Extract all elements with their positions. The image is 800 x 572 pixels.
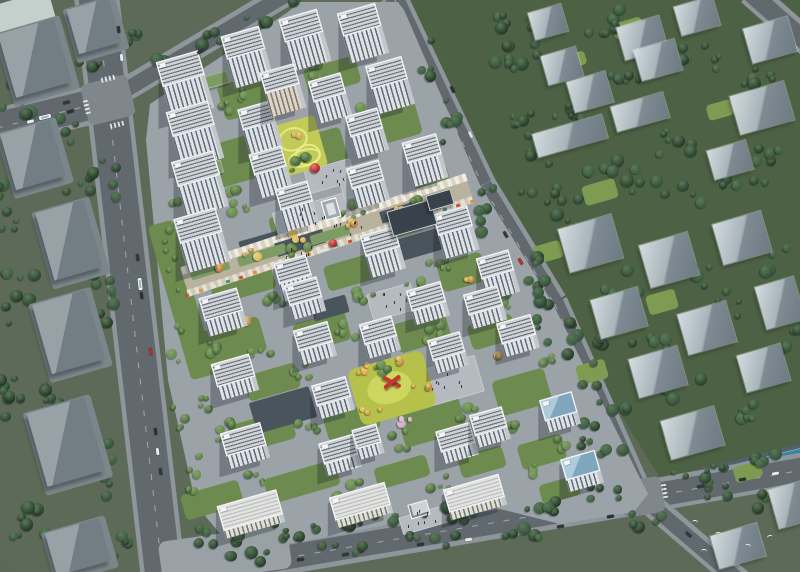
tree xyxy=(167,349,177,359)
tree xyxy=(0,192,4,200)
tree xyxy=(101,317,112,328)
tree xyxy=(61,127,71,137)
person xyxy=(361,225,363,228)
tree xyxy=(536,325,541,330)
tree xyxy=(311,523,316,528)
ghost-building xyxy=(710,523,766,569)
rooftop-unit xyxy=(332,498,339,503)
tree xyxy=(231,185,241,195)
bus-roof-stripe xyxy=(139,280,141,288)
tree xyxy=(516,57,529,70)
tree xyxy=(40,384,52,396)
rooftop-unit xyxy=(220,507,227,512)
tree xyxy=(574,194,584,204)
tree xyxy=(264,549,270,555)
tree xyxy=(622,265,634,277)
tree xyxy=(79,181,84,186)
tree xyxy=(770,251,777,258)
tree xyxy=(181,414,190,423)
tree xyxy=(567,333,579,345)
rooftop-unit xyxy=(241,110,248,115)
rooftop-unit xyxy=(311,82,318,87)
tree xyxy=(227,207,238,218)
sculpture-sphere xyxy=(329,239,337,247)
rooftop-unit xyxy=(409,291,416,296)
rooftop-unit xyxy=(278,190,285,195)
tree xyxy=(407,534,414,541)
tree xyxy=(490,184,497,191)
car xyxy=(155,448,159,455)
tree xyxy=(545,199,551,205)
tree xyxy=(290,168,295,173)
car xyxy=(116,26,120,33)
tree xyxy=(399,416,405,422)
tree xyxy=(88,167,99,178)
tree xyxy=(17,394,26,403)
tree xyxy=(696,197,706,207)
tree xyxy=(356,478,364,486)
tree xyxy=(171,405,175,409)
tree xyxy=(614,4,626,16)
rooftop-unit xyxy=(159,63,166,68)
tree xyxy=(92,279,102,289)
tree xyxy=(426,483,436,493)
tree xyxy=(476,216,486,226)
tree xyxy=(515,121,521,127)
rooftop-unit xyxy=(252,155,259,160)
tree xyxy=(612,20,619,27)
rooftop-unit xyxy=(369,67,376,72)
bus-roof-stripe xyxy=(41,115,49,118)
rooftop-unit xyxy=(322,444,329,449)
tree xyxy=(10,533,17,540)
tree xyxy=(717,54,722,59)
tree xyxy=(112,192,122,202)
tree xyxy=(107,481,113,487)
tree xyxy=(108,298,120,310)
ghost-building xyxy=(768,481,800,529)
tree xyxy=(29,269,41,281)
tree xyxy=(558,196,566,204)
tree xyxy=(509,529,517,537)
tree xyxy=(793,324,800,335)
tree xyxy=(18,275,23,280)
tree xyxy=(565,317,576,328)
tree xyxy=(199,395,205,401)
tree xyxy=(720,181,727,188)
rooftop-unit xyxy=(169,113,176,118)
tree xyxy=(719,464,725,470)
tree xyxy=(290,156,301,167)
tree xyxy=(378,407,383,412)
tree xyxy=(167,267,172,272)
tree xyxy=(292,132,296,136)
tree xyxy=(656,150,664,158)
person xyxy=(314,222,316,225)
car xyxy=(139,292,143,299)
rooftop-unit xyxy=(315,386,322,391)
tree xyxy=(577,442,586,451)
tree xyxy=(451,531,460,540)
tree xyxy=(73,121,78,126)
tree xyxy=(749,399,759,409)
awning xyxy=(470,199,475,203)
tree xyxy=(259,348,264,353)
tree xyxy=(623,404,632,413)
rooftop-unit xyxy=(223,433,230,438)
tree xyxy=(533,260,539,266)
rooftop-unit xyxy=(439,432,446,437)
tree xyxy=(544,338,552,346)
car xyxy=(135,254,139,261)
rooftop-unit xyxy=(500,324,507,329)
tree xyxy=(296,374,302,380)
tree xyxy=(475,226,487,238)
tree xyxy=(106,276,115,285)
tree xyxy=(580,436,586,442)
tree xyxy=(603,30,610,37)
rooftop-unit xyxy=(479,259,486,264)
tree xyxy=(685,145,697,157)
tree xyxy=(608,71,615,78)
person xyxy=(324,216,326,219)
tree xyxy=(225,551,234,560)
tree xyxy=(129,29,137,37)
tree xyxy=(753,502,764,513)
tree xyxy=(732,180,742,190)
rooftop-unit xyxy=(277,264,284,269)
tree xyxy=(225,100,230,105)
tree xyxy=(464,277,469,282)
tree xyxy=(395,444,404,453)
render-stage xyxy=(0,0,800,572)
tree xyxy=(578,380,588,390)
tree xyxy=(283,533,289,539)
tree xyxy=(601,444,612,455)
rooftop-unit xyxy=(224,37,231,42)
rooftop-unit xyxy=(446,490,453,495)
tree xyxy=(102,491,112,501)
tree xyxy=(723,491,733,501)
person xyxy=(447,372,448,375)
tree xyxy=(164,248,169,253)
tree xyxy=(528,188,537,197)
tree xyxy=(630,164,641,175)
tree xyxy=(547,508,552,513)
person xyxy=(427,512,429,515)
tree xyxy=(750,176,759,185)
tree xyxy=(2,268,13,279)
car xyxy=(153,428,157,435)
tree xyxy=(660,333,672,345)
tree xyxy=(283,528,289,534)
tree xyxy=(630,189,636,195)
rooftop-unit xyxy=(282,20,289,25)
tree xyxy=(293,247,297,251)
tree xyxy=(425,70,436,81)
tree xyxy=(68,138,76,146)
tree xyxy=(551,208,564,221)
tree xyxy=(353,549,360,556)
person xyxy=(301,251,303,254)
tree xyxy=(388,431,397,440)
rooftop-unit xyxy=(405,143,412,148)
tree xyxy=(592,381,601,390)
awning xyxy=(212,284,217,288)
tree xyxy=(230,199,238,207)
tree xyxy=(430,533,441,544)
rooftop-unit xyxy=(363,236,370,241)
tree xyxy=(196,524,204,532)
tree xyxy=(496,22,508,34)
tree xyxy=(318,541,326,549)
tree xyxy=(428,37,435,44)
tree xyxy=(108,286,116,294)
tree xyxy=(360,407,365,412)
tree xyxy=(261,481,265,485)
tree xyxy=(255,556,266,567)
tree xyxy=(525,506,531,512)
tree xyxy=(444,473,449,478)
tree xyxy=(248,348,254,354)
car xyxy=(158,468,162,475)
car xyxy=(119,54,123,61)
tree xyxy=(405,282,409,286)
tree xyxy=(775,146,783,154)
tree xyxy=(0,225,6,232)
rooftop-unit xyxy=(340,14,347,19)
tree xyxy=(503,41,512,50)
sculpture-sphere xyxy=(310,163,320,173)
tree xyxy=(474,205,485,216)
tree xyxy=(34,508,40,514)
tree xyxy=(177,287,181,291)
tree xyxy=(7,321,13,327)
tree xyxy=(306,374,313,381)
tree xyxy=(443,542,450,549)
tree xyxy=(601,284,611,294)
awning xyxy=(320,248,325,252)
car xyxy=(148,348,152,355)
tree xyxy=(711,463,716,468)
tree xyxy=(472,406,478,412)
tree xyxy=(243,204,247,208)
rooftop-unit xyxy=(202,299,209,304)
tree xyxy=(569,113,574,118)
tree xyxy=(112,163,121,172)
tree xyxy=(21,518,33,530)
tree xyxy=(524,276,534,286)
tree xyxy=(511,65,518,72)
tree xyxy=(562,441,570,449)
tree xyxy=(678,180,688,190)
tree xyxy=(12,226,18,232)
person xyxy=(308,253,309,256)
person xyxy=(336,224,338,227)
rooftop-unit xyxy=(350,169,357,174)
tree xyxy=(14,218,20,224)
tree xyxy=(649,336,660,347)
tree xyxy=(2,302,11,311)
tree xyxy=(713,65,720,72)
tree xyxy=(723,287,731,295)
rooftop-unit xyxy=(362,325,369,330)
person xyxy=(459,381,461,384)
bird xyxy=(701,549,707,554)
tree xyxy=(762,179,768,185)
tree xyxy=(426,383,432,389)
person xyxy=(408,525,409,528)
tree xyxy=(196,453,202,459)
rooftop-unit xyxy=(564,460,571,465)
tree xyxy=(117,531,127,541)
tree xyxy=(346,223,351,228)
tree xyxy=(333,542,339,548)
tree xyxy=(553,113,558,118)
rooftop-unit xyxy=(436,215,443,220)
tree xyxy=(696,373,707,384)
tree xyxy=(490,56,502,68)
tree xyxy=(621,174,634,187)
tree xyxy=(1,412,11,422)
tree xyxy=(531,40,539,48)
tree xyxy=(300,237,306,243)
tree xyxy=(456,415,462,421)
tree xyxy=(0,103,7,111)
tree xyxy=(296,132,303,139)
tree xyxy=(590,421,600,431)
rooftop-unit xyxy=(287,286,294,291)
rooftop-unit xyxy=(214,365,221,370)
tree xyxy=(292,236,299,243)
tree xyxy=(12,376,18,382)
car xyxy=(556,525,563,529)
tree xyxy=(359,295,363,299)
awning xyxy=(185,293,190,297)
tree xyxy=(426,259,433,266)
tree xyxy=(388,516,399,527)
tree xyxy=(177,359,181,363)
tree xyxy=(179,328,185,334)
bird xyxy=(692,520,698,525)
tree xyxy=(244,470,253,479)
tree xyxy=(630,520,638,528)
rooftop-unit xyxy=(466,295,473,300)
tree xyxy=(86,185,97,196)
tree xyxy=(447,266,451,270)
tree xyxy=(361,367,369,375)
tree xyxy=(186,486,192,492)
tree xyxy=(760,265,773,278)
tree xyxy=(193,470,201,478)
tree xyxy=(661,190,670,199)
rooftop-unit xyxy=(296,331,303,336)
tree xyxy=(340,329,348,337)
person xyxy=(418,522,419,525)
rooftop-unit xyxy=(431,340,438,345)
tree xyxy=(661,131,667,137)
rooftop-unit xyxy=(543,401,550,406)
person xyxy=(322,181,324,184)
tree xyxy=(507,305,511,309)
tree xyxy=(63,188,71,196)
tree xyxy=(22,501,34,513)
tree xyxy=(415,535,421,541)
person xyxy=(435,520,437,523)
tree xyxy=(749,415,755,421)
bird xyxy=(767,534,774,540)
tree xyxy=(339,319,348,328)
tree xyxy=(408,417,412,421)
rooftop-unit xyxy=(177,220,184,225)
rooftop-unit xyxy=(348,117,355,122)
tree xyxy=(629,339,637,347)
tree xyxy=(590,359,598,367)
tree xyxy=(3,207,12,216)
tree xyxy=(187,467,193,473)
rooftop-unit xyxy=(473,416,480,421)
tree xyxy=(700,472,711,483)
tree xyxy=(742,81,748,87)
tree xyxy=(616,495,622,501)
tree xyxy=(587,438,594,445)
rooftop-unit xyxy=(263,73,270,78)
tree xyxy=(702,283,708,289)
aerial-render-scene: Aerial bird's-eye architectural renderin… xyxy=(0,0,800,572)
tree xyxy=(535,534,542,541)
tree xyxy=(17,532,23,538)
person xyxy=(302,208,304,211)
person xyxy=(393,301,395,304)
rooftop-unit xyxy=(175,163,182,168)
tree xyxy=(11,290,23,302)
tree xyxy=(597,399,602,404)
